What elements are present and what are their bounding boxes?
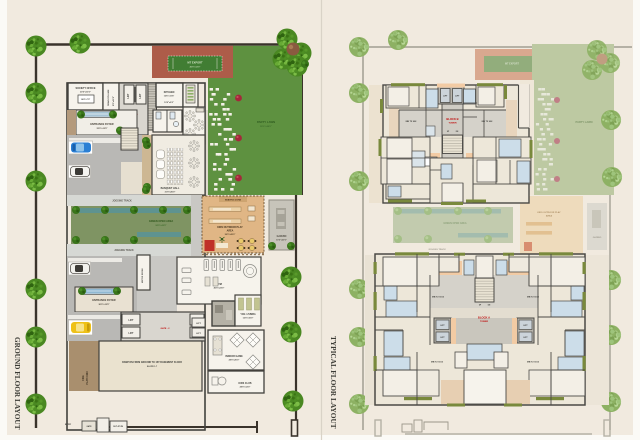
svg-text:KITCHEN: KITCHEN (164, 91, 175, 94)
svg-text:TOWER: TOWER (480, 321, 489, 323)
svg-text:SOCIETY OFFICE: SOCIETY OFFICE (76, 87, 96, 90)
svg-text:ENTRY: ENTRY (65, 424, 72, 426)
svg-text:GROUND FLOOR LAYOUT: GROUND FLOOR LAYOUT (13, 337, 22, 430)
svg-text:55'0"x38'0": 55'0"x38'0" (260, 126, 272, 128)
svg-text:20'0"x13'0": 20'0"x13'0" (80, 92, 91, 94)
svg-text:YOG / ZUMBA: YOG / ZUMBA (240, 313, 256, 316)
svg-text:KIDS OUTDOOR PLAY: KIDS OUTDOOR PLAY (537, 211, 561, 214)
svg-text:LIFT: LIFT (127, 93, 130, 99)
svg-text:LIFT: LIFT (128, 332, 134, 335)
svg-text:LIFT: LIFT (139, 93, 142, 99)
svg-text:TYPICAL FLOOR LAYOUT: TYPICAL FLOOR LAYOUT (329, 336, 338, 429)
svg-text:GAZEBO: GAZEBO (593, 236, 602, 239)
svg-text:12'0"x15'0": 12'0"x15'0" (243, 317, 254, 319)
svg-text:GAZEBO: GAZEBO (277, 235, 287, 238)
svg-text:PLATFORM: PLATFORM (86, 371, 89, 384)
svg-text:LIFT: LIFT (196, 333, 201, 335)
svg-text:LIFT: LIFT (128, 319, 134, 322)
svg-text:METER ROOM: METER ROOM (142, 268, 144, 283)
svg-text:30'0"x13'0": 30'0"x13'0" (98, 304, 109, 306)
svg-text:JOGGING TRACK: JOGGING TRACK (114, 249, 134, 252)
svg-text:MT EXPORT: MT EXPORT (187, 61, 203, 65)
svg-text:40'0"x12'0": 40'0"x12'0" (190, 66, 201, 69)
svg-text:33'0"x13'0": 33'0"x13'0" (96, 128, 107, 130)
svg-text:KIDS CLUB: KIDS CLUB (238, 382, 251, 385)
svg-text:92'0"x23'0": 92'0"x23'0" (155, 225, 166, 227)
svg-text:GREEN OPEN AREA: GREEN OPEN AREA (443, 222, 467, 225)
svg-text:MB T2 902: MB T2 902 (406, 121, 418, 123)
svg-text:31'0"x26'0": 31'0"x26'0" (165, 191, 176, 193)
svg-text:PARTY LAWN: PARTY LAWN (576, 120, 593, 124)
svg-text:RAMP DN FROM GROUND TO 1ST BAS: RAMP DN FROM GROUND TO 1ST BASEMENT FLOO… (122, 361, 182, 364)
svg-text:JOGGING TRACK: JOGGING TRACK (112, 200, 132, 203)
svg-text:40'0"x23'0": 40'0"x23'0" (214, 287, 225, 290)
svg-text:JOGGING TRACK: JOGGING TRACK (428, 248, 446, 251)
svg-text:28'0"x12'0": 28'0"x12'0" (240, 387, 251, 389)
svg-text:ENTRANCE FOYER: ENTRANCE FOYER (92, 299, 115, 302)
svg-text:38'0"x28'0": 38'0"x28'0" (225, 234, 236, 236)
svg-text:AREA: AREA (546, 215, 553, 218)
svg-text:SEATING ZONE: SEATING ZONE (225, 199, 242, 202)
svg-text:MB T2 1103: MB T2 1103 (432, 297, 445, 299)
svg-text:28'0"x20'0": 28'0"x20'0" (229, 360, 240, 362)
svg-text:10'0"x20'0": 10'0"x20'0" (276, 240, 287, 242)
svg-text:LIFT: LIFT (196, 323, 201, 325)
svg-text:GATE - 2: GATE - 2 (160, 327, 170, 330)
svg-text:SLOPE 1:7: SLOPE 1:7 (147, 366, 158, 368)
svg-text:13'6"x11'6": 13'6"x11'6" (164, 96, 175, 98)
svg-text:GATE: GATE (86, 425, 92, 428)
svg-text:MB T2 1103: MB T2 1103 (527, 362, 540, 364)
svg-text:PARTY LAWN: PARTY LAWN (257, 120, 275, 124)
svg-text:DRAIN COLUMN: DRAIN COLUMN (107, 89, 110, 106)
svg-text:10'0"x9'0": 10'0"x9'0" (164, 102, 174, 104)
svg-text:BLOCK A: BLOCK A (478, 316, 490, 320)
svg-text:BLOCK B: BLOCK B (446, 117, 458, 121)
svg-text:MT EXPORT: MT EXPORT (505, 63, 519, 66)
svg-text:MB T2 1103: MB T2 1103 (431, 362, 444, 364)
svg-text:MB T2 902: MB T2 902 (482, 121, 494, 123)
svg-text:TOWER: TOWER (448, 123, 457, 125)
svg-text:GREEN OPEN AREA: GREEN OPEN AREA (149, 220, 174, 223)
svg-text:16'4"x7'9": 16'4"x7'9" (81, 98, 91, 101)
svg-text:9'0"x22'0": 9'0"x22'0" (113, 96, 115, 106)
svg-text:INDOOR GAME: INDOOR GAME (225, 355, 243, 358)
svg-text:ENTRANCE FOYER: ENTRANCE FOYER (90, 123, 113, 126)
svg-text:BANQUET HALL: BANQUET HALL (161, 187, 180, 190)
svg-text:OUT AT 2M: OUT AT 2M (113, 425, 123, 428)
svg-text:FIRE: FIRE (82, 375, 85, 381)
svg-text:AREA: AREA (227, 230, 234, 233)
